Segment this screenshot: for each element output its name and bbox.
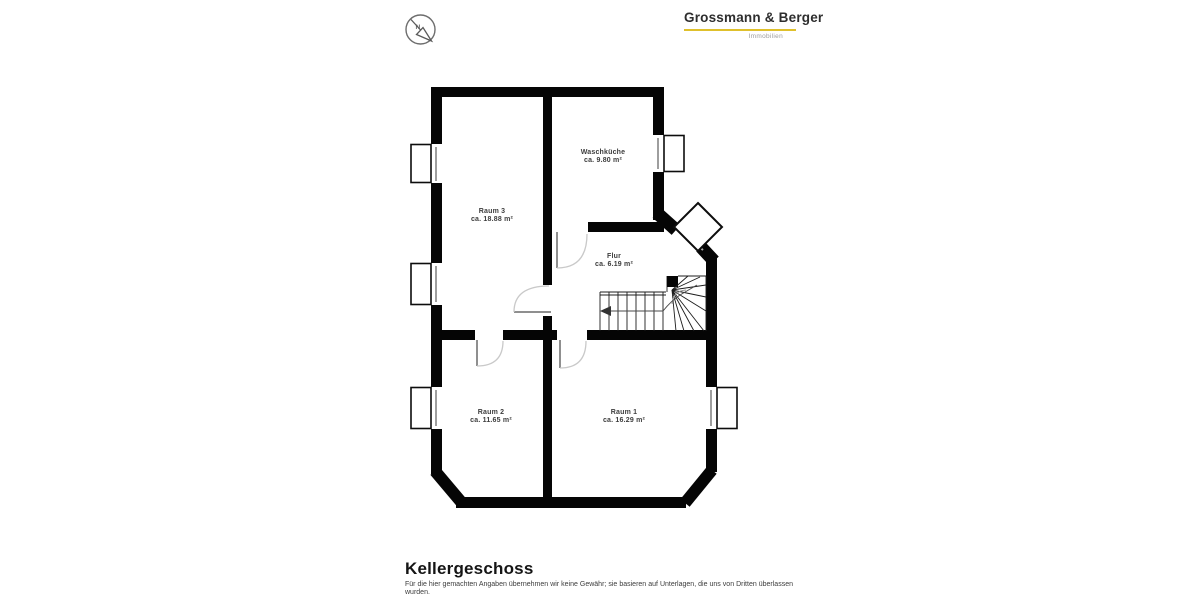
windows	[411, 136, 737, 429]
window-raum2	[411, 388, 431, 429]
stair-direction-arrow	[600, 306, 611, 316]
door-raum3-flur	[514, 286, 551, 312]
brand-logo-subtitle: Immobilien	[684, 33, 796, 40]
door-raum3-raum2	[477, 340, 503, 366]
room-area-waschkueche: ca. 9.80 m²	[584, 157, 622, 164]
room-area-raum3: ca. 18.88 m²	[471, 216, 514, 223]
room-area-raum2: ca. 11.65 m²	[470, 417, 512, 424]
brand-logo-text: Grossmann & Berger	[684, 11, 796, 26]
compass-north-label: N	[416, 24, 421, 31]
window-raum3-upper	[411, 145, 431, 183]
north-compass-icon: N	[404, 12, 438, 48]
room-label-raum3: Raum 3	[479, 208, 506, 215]
window-raum3-lower	[411, 264, 431, 305]
brand-logo-underline	[684, 29, 796, 31]
window-raum1	[717, 388, 737, 429]
door-flur-waschkueche	[557, 232, 587, 268]
room-label-flur: Flur	[607, 253, 621, 260]
floorplan-drawing: Waschküche ca. 9.80 m² Raum 3 ca. 18.88 …	[400, 80, 745, 515]
doors	[477, 232, 587, 368]
room-label-raum2: Raum 2	[478, 409, 505, 416]
staircase	[600, 276, 706, 331]
room-labels: Waschküche ca. 9.80 m² Raum 3 ca. 18.88 …	[470, 149, 645, 424]
window-waschkueche	[664, 136, 684, 172]
floorplan-page: N Grossmann & Berger Immobilien	[0, 0, 1200, 600]
door-flur-raum1	[560, 340, 586, 368]
room-area-flur: ca. 6.19 m²	[595, 261, 633, 268]
floor-title: Kellergeschoss	[405, 559, 533, 579]
room-label-raum1: Raum 1	[611, 409, 638, 416]
disclaimer-text: Für die hier gemachten Angaben übernehme…	[405, 581, 793, 597]
entrance-door	[674, 203, 722, 251]
room-label-waschkueche: Waschküche	[581, 149, 626, 156]
brand-logo: Grossmann & Berger Immobilien	[684, 11, 796, 40]
room-area-raum1: ca. 16.29 m²	[603, 417, 646, 424]
